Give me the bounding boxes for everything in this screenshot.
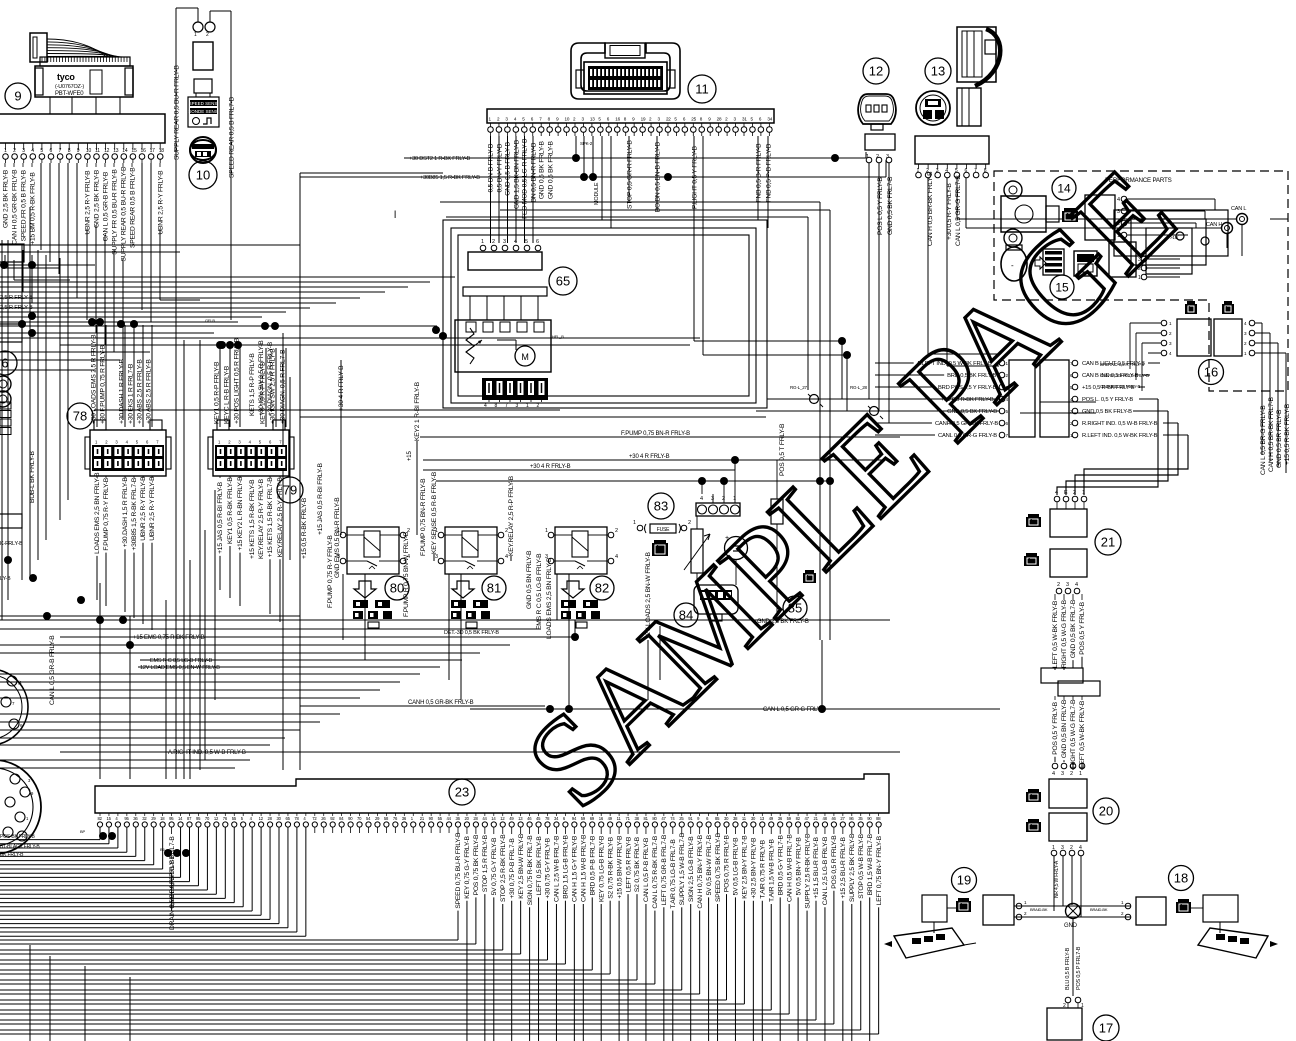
svg-text:SIGN 0,75 R-BK FRL7-B: SIGN 0,75 R-BK FRL7-B <box>527 835 534 905</box>
svg-text:14: 14 <box>122 148 128 154</box>
svg-text:CAN H 1,5 W-B FRLY-B: CAN H 1,5 W-B FRLY-B <box>581 834 588 902</box>
svg-text:+30 ABS 2,5 R FRLY-B: +30 ABS 2,5 R FRLY-B <box>137 359 144 424</box>
svg-text:KEY 0,75 G-Y FRLY-B: KEY 0,75 G-Y FRLY-B <box>464 835 471 898</box>
svg-text:+15 0,5 BN-W FRLY-B: +15 0,5 BN-W FRLY-B <box>616 835 623 899</box>
svg-text:F.PUMP 0,75 R-Y FRLY-B: F.PUMP 0,75 R-Y FRLY-B <box>103 477 110 550</box>
svg-text:POS 0,5 Y FRLY-B: POS 0,5 Y FRLY-B <box>1079 601 1086 654</box>
svg-text:+30 0,75 P-B FRL7-B: +30 0,75 P-B FRL7-B <box>509 838 516 899</box>
svg-text:GND 0,5 BN FRLY-B: GND 0,5 BN FRLY-B <box>1061 699 1068 758</box>
svg-text:BRAID-BK: BRAID-BK <box>1090 907 1108 912</box>
svg-text:STOP 0,5 GR-R FRLY-B: STOP 0,5 GR-R FRLY-B <box>627 140 634 209</box>
svg-text:8: 8 <box>495 403 498 409</box>
svg-text:CAN L 2,5 W-B FRL7-B: CAN L 2,5 W-B FRL7-B <box>554 835 561 902</box>
svg-text:13: 13 <box>931 64 945 79</box>
svg-text:CAN L 0,75 R-BK FRL7-B: CAN L 0,75 R-BK FRL7-B <box>652 835 659 908</box>
svg-text:CAN H 1,5 G-Y FRLY-B: CAN H 1,5 G-Y FRLY-B <box>572 835 579 902</box>
svg-text:1: 1 <box>633 520 636 526</box>
svg-text:16: 16 <box>141 148 147 154</box>
svg-text:LEFT 0,5 R FRLY-B: LEFT 0,5 R FRLY-B <box>625 836 632 892</box>
svg-text:9: 9 <box>14 89 21 104</box>
svg-text:5: 5 <box>525 239 528 245</box>
svg-text:SUPPLY REAR 0,5 BU-R FRLY-B: SUPPLY REAR 0,5 BU-R FRLY-B <box>121 166 128 261</box>
svg-text:POS L 0,5 Y FRLY-B: POS L 0,5 Y FRLY-B <box>877 177 884 235</box>
svg-text:STOP 2,5 R-BK FRLY-B: STOP 2,5 R-BK FRLY-B <box>500 834 507 902</box>
svg-text:RIGHT 0,5 W-G FRLY-B: RIGHT 0,5 W-G FRLY-B <box>1061 599 1068 668</box>
svg-text:CAN L 0,5 BR-G FRLY-B: CAN L 0,5 BR-G FRLY-B <box>1260 405 1267 475</box>
svg-text:KEYC L R-B FRLY-B: KEYC L R-B FRLY-B <box>224 365 231 424</box>
svg-text:28: 28 <box>717 117 722 122</box>
svg-text:+15 EMS 0,75 R-BK FRLY-B: +15 EMS 0,75 R-BK FRLY-B <box>133 635 205 641</box>
svg-text:SIGN 2,5 LG-B FRLY-B: SIGN 2,5 LG-B FRLY-B <box>688 836 695 902</box>
svg-text:CAN H 0,5 W-B FRL7-B: CAN H 0,5 W-B FRL7-B <box>786 834 793 902</box>
svg-text:+15 BM 0,5 R-BK FRLY-B: +15 BM 0,5 R-BK FRLY-B <box>30 172 37 245</box>
svg-text:K-FRLY-B: K-FRLY-B <box>0 541 23 547</box>
svg-text:BRD 0,5 G-Y FRL7-B: BRD 0,5 G-Y FRL7-B <box>777 834 784 895</box>
svg-text:19: 19 <box>641 117 646 122</box>
svg-text:SPEED REAR 0,5 B FRLY-B: SPEED REAR 0,5 B FRLY-B <box>130 167 137 248</box>
svg-text:SPEED.FR 0,5 B FRLY-B: SPEED.FR 0,5 B FRLY-B <box>21 169 28 241</box>
svg-text:2: 2 <box>615 528 618 534</box>
svg-text:M: M <box>521 352 528 362</box>
svg-text:SUPPLY FR 0,5 BU-R FRLY-B: SUPPLY FR 0,5 BU-R FRLY-B <box>112 169 119 255</box>
svg-text:F.PUMP 0,75 BN-R FRLY-B: F.PUMP 0,75 BN-R FRLY-B <box>621 431 690 437</box>
svg-text:1: 1 <box>545 528 548 534</box>
svg-text:SUPPLY REAR 0,5 BU-R FRLY-B: SUPPLY REAR 0,5 BU-R FRLY-B <box>174 65 181 160</box>
svg-text:BRD IND 0,5 R FRLY-B: BRD IND 0,5 R FRLY-B <box>1100 362 1144 367</box>
svg-text:+30 DST2 1 R-BK FRLY-B: +30 DST2 1 R-BK FRLY-B <box>409 156 471 162</box>
svg-text:5V 0,5 LG-B FRLY-B: 5V 0,5 LG-B FRLY-B <box>733 837 740 895</box>
svg-text:2: 2 <box>492 239 495 245</box>
svg-text:4: 4 <box>1052 771 1055 777</box>
svg-text:BN 0,5 BN-R FRLY-B: BN 0,5 BN-R FRLY-B <box>531 142 538 202</box>
svg-text:82: 82 <box>595 581 609 596</box>
svg-text:CAN H 0,5 GR-BK FRLY-B: CAN H 0,5 GR-BK FRLY-B <box>12 169 19 245</box>
svg-text:STOP 0,5 W-B FRLY-B: STOP 0,5 W-B FRLY-B <box>858 833 865 898</box>
svg-text:UBNR 2,5 R-Y FRLY-B: UBNR 2,5 R-Y FRLY-B <box>140 476 147 541</box>
svg-text:GND 0,5 BK FRLY-B: GND 0,5 BK FRLY-B <box>548 140 555 199</box>
svg-text:12: 12 <box>104 148 110 154</box>
svg-text:GND 1,5 BK-BN FRLY-B: GND 1,5 BK-BN FRLY-B <box>514 139 521 209</box>
svg-text:+15 2,5 BU-R FRLY-B: +15 2,5 BU-R FRLY-B <box>840 837 847 899</box>
svg-text:22: 22 <box>666 117 671 122</box>
svg-text:+30 POS LIGHT 0,5 R FRLY-B: +30 POS LIGHT 0,5 R FRLY-B <box>234 337 241 424</box>
svg-text:POS 0,5 R FRLY-B: POS 0,5 R FRLY-B <box>831 835 838 889</box>
svg-text:KEY 2,5 BN-W FRLY-B: KEY 2,5 BN-W FRLY-B <box>518 833 525 899</box>
svg-text:4: 4 <box>1055 490 1058 496</box>
svg-text:3: 3 <box>1061 771 1064 777</box>
svg-text:CAN L 0,5 GR-B FRLY-B: CAN L 0,5 GR-B FRLY-B <box>49 635 56 705</box>
svg-text:4: 4 <box>615 554 618 560</box>
svg-text:+30 0,75 G-Y FRLY-B: +30 0,75 G-Y FRLY-B <box>545 837 552 898</box>
svg-text:12V LOAD EMS 0,5 BN-W FRLY-B: 12V LOAD EMS 0,5 BN-W FRLY-B <box>140 665 220 671</box>
svg-text:CAN L 0,75 LG-B FRL7-B: CAN L 0,75 LG-B FRL7-B <box>169 836 176 909</box>
svg-text:l: l <box>394 210 396 221</box>
svg-text:78: 78 <box>73 409 87 424</box>
svg-text:5V 0,75 G-Y FRLY-B: 5V 0,75 G-Y FRLY-B <box>491 837 498 895</box>
svg-text:KEY1 0,5 R-BK FRLY-B: KEY1 0,5 R-BK FRLY-B <box>227 477 234 544</box>
svg-text:0,5 BN-Y FRLY-B: 0,5 BN-Y FRLY-B <box>497 143 504 192</box>
svg-text:BRD 1,5 LG-B FRLY-B: BRD 1,5 LG-B FRLY-B <box>563 834 570 898</box>
svg-text:2: 2 <box>688 520 691 526</box>
svg-text:18: 18 <box>159 148 165 154</box>
svg-text:GELB: GELB <box>205 318 215 323</box>
svg-text:1: 1 <box>1079 771 1082 777</box>
svg-text:BRD 1,5 W-B FRL7-B: BRD 1,5 W-B FRL7-B <box>867 833 874 895</box>
svg-text:LOADS EMS 2,5 BN FRLY-B: LOADS EMS 2,5 BN FRLY-B <box>546 557 553 639</box>
svg-text:F.PUMP 0,75 R-Y FRLY-B: F.PUMP 0,75 R-Y FRLY-B <box>327 535 334 608</box>
svg-text:PBT-WFE0: PBT-WFE0 <box>55 91 84 97</box>
svg-text:FUSE: FUSE <box>657 527 670 533</box>
svg-text:SPEED 0,75 BU-R FRLY-B: SPEED 0,75 BU-R FRLY-B <box>455 832 462 909</box>
svg-text:GND EMS 0,5 BN-R FRLY-B: GND EMS 0,5 BN-R FRLY-B <box>334 497 341 578</box>
svg-text:34: 34 <box>767 117 772 122</box>
svg-text:2: 2 <box>206 32 209 38</box>
svg-text:KEY1 0,5 R-P FRLY-B: KEY1 0,5 R-P FRLY-B <box>214 361 221 424</box>
svg-text:BLU 0,5 B FRLY-B: BLU 0,5 B FRLY-B <box>1065 947 1071 990</box>
svg-text:BRAID-BK: BRAID-BK <box>1030 907 1048 912</box>
svg-text:CANH 0,5 GR-BK FRLY-B: CANH 0,5 GR-BK FRLY-B <box>408 700 474 706</box>
svg-text:S2 0,75 BK FRLY-B: S2 0,75 BK FRLY-B <box>634 836 641 892</box>
svg-text:20: 20 <box>1099 804 1113 819</box>
svg-text:CAN L 2,5 LG-B FRLY-B: CAN L 2,5 LG-B FRLY-B <box>822 836 829 905</box>
svg-text:+15 0,5 R-BK FRLY-B: +15 0,5 R-BK FRLY-B <box>301 497 308 559</box>
svg-text:7: 7 <box>505 403 508 409</box>
svg-text:LEFT 0,5 BK FRLY-B: LEFT 0,5 BK FRLY-B <box>536 836 543 896</box>
svg-text:+30 4 R FRLY-B: +30 4 R FRLY-B <box>530 464 571 470</box>
svg-text:+30 DIAGN. 0,5 R FRL7-B: +30 DIAGN. 0,5 R FRL7-B <box>280 349 287 424</box>
svg-text:T.AIR 0,75 LG-B FRL7-B: T.AIR 0,75 LG-B FRL7-B <box>670 839 677 909</box>
svg-text:POS 0,75 R FRLY-B: POS 0,75 R FRLY-B <box>724 835 731 893</box>
svg-text:83: 83 <box>654 499 668 514</box>
svg-text:KEY 0,75 LG-B FRLY-B: KEY 0,75 LG-B FRLY-B <box>598 835 605 902</box>
svg-text:+30 DIAGN. 0,5 R FRLY-B: +30 DIAGN. 0,5 R FRLY-B <box>267 341 274 416</box>
svg-text:R.LEFT IND. 0,5 W-BK FRLY-B: R.LEFT IND. 0,5 W-BK FRLY-B <box>1082 433 1158 439</box>
svg-text:BP: BP <box>80 829 85 834</box>
svg-text:2: 2 <box>1057 582 1060 588</box>
svg-text:2: 2 <box>1070 771 1073 777</box>
svg-text:GND 2,5 BK FRLY-B: GND 2,5 BK FRLY-B <box>94 169 101 228</box>
svg-text:GND IND 0,5 FRLY-B: GND IND 0,5 FRLY-B <box>1100 384 1140 389</box>
svg-text:POS 0,75 BK FRLY-B: POS 0,75 BK FRLY-B <box>473 834 480 895</box>
svg-text:2: 2 <box>722 496 725 502</box>
svg-text:CAN H 0,75 BN-Y FRLY-B: CAN H 0,75 BN-Y FRLY-B <box>697 834 704 908</box>
svg-text:65: 65 <box>556 274 570 289</box>
svg-text:GND 0,5 BR FRLY-B: GND 0,5 BR FRLY-B <box>1276 409 1283 468</box>
svg-text:+15 JAS 0,5 R-BI FRLY-B: +15 JAS 0,5 R-BI FRLY-B <box>317 462 324 535</box>
svg-text:RIGHT 0,5 W-G FRL7-B: RIGHT 0,5 W-G FRL7-B <box>1070 699 1077 768</box>
svg-text:+15 JAS 0,5 R-BI FRLY-B: +15 JAS 0,5 R-BI FRLY-B <box>217 481 224 554</box>
svg-text:F.PUMP R 0,75 BN-W FRLY-B: F.PUMP R 0,75 BN-W FRLY-B <box>403 531 410 617</box>
svg-text:A.RIGHT IND. 0,5 W-B FRLY-B: A.RIGHT IND. 0,5 W-B FRLY-B <box>168 750 246 756</box>
svg-text:17: 17 <box>150 148 156 154</box>
svg-text:+15 0,5 R-BK FRLY-B: +15 0,5 R-BK FRLY-B <box>1284 403 1291 465</box>
svg-text:SUPPLY 2,5 R-BK FRLY-B: SUPPLY 2,5 R-BK FRLY-B <box>804 833 811 909</box>
svg-text:16: 16 <box>615 117 620 122</box>
svg-text:18: 18 <box>1174 871 1188 886</box>
svg-text:SUPPLY 1,5 W-B FRL7-B: SUPPLY 1,5 W-B FRL7-B <box>679 832 686 905</box>
svg-text:LOADS EMS 2,5 BN FRLY-B: LOADS EMS 2,5 BN FRLY-B <box>94 472 101 554</box>
svg-text:S2 0,75 R-BK FRLY-B: S2 0,75 R-BK FRLY-B <box>607 836 614 898</box>
svg-text:10: 10 <box>565 117 570 122</box>
svg-text:1: 1 <box>481 239 484 245</box>
svg-text:POS 0,5 Y FRLY-B: POS 0,5 Y FRLY-B <box>1052 701 1059 754</box>
svg-text:SPEED 0,75 BK FRLY-B: SPEED 0,75 BK FRLY-B <box>715 832 722 902</box>
svg-text:GND 0,5 BN FRLY-B: GND 0,5 BN FRLY-B <box>526 550 533 609</box>
svg-text:19: 19 <box>957 873 971 888</box>
svg-text:+30 ABS 2,5 R FRLY-B: +30 ABS 2,5 R FRLY-B <box>146 359 153 424</box>
svg-text:6: 6 <box>536 239 539 245</box>
svg-text:SPK-2: SPK-2 <box>580 141 593 146</box>
svg-text:KEY.RELAY 2,5 R-P FRLY-B: KEY.RELAY 2,5 R-P FRLY-B <box>508 475 515 556</box>
svg-text:CAN H 0,5 BR-BK FRL7-B: CAN H 0,5 BR-BK FRL7-B <box>1268 397 1275 472</box>
svg-text:GND: GND <box>1064 923 1078 929</box>
svg-text:T.AIR 1,5 W-B FRLY-B: T.AIR 1,5 W-B FRLY-B <box>768 838 775 902</box>
svg-text:UBNR 2,5 R-Y FRLY-B: UBNR 2,5 R-Y FRLY-B <box>149 476 156 541</box>
svg-text:KEY.RELAY 2,5 R-Y FRLY-B: KEY.RELAY 2,5 R-Y FRLY-B <box>258 478 265 559</box>
svg-text:10: 10 <box>86 148 92 154</box>
svg-text:4: 4 <box>1075 582 1078 588</box>
svg-text:(-U0767OZ-): (-U0767OZ-) <box>55 84 84 90</box>
svg-text:+30.DASH 1,5 R FRLY-B: +30.DASH 1,5 R FRLY-B <box>122 477 129 548</box>
svg-text:15: 15 <box>131 148 137 154</box>
svg-text:10: 10 <box>196 168 210 183</box>
svg-text:KEY 2,5 BN-Y FRL7-B: KEY 2,5 BN-Y FRL7-B <box>742 835 749 899</box>
svg-text:+30B85 1,5 R-BK FRL7-B: +30B85 1,5 R-BK FRL7-B <box>131 477 138 550</box>
svg-text:4: 4 <box>484 403 487 409</box>
svg-text:4: 4 <box>700 496 703 502</box>
svg-text:1: 1 <box>194 32 197 38</box>
svg-text:13: 13 <box>590 117 595 122</box>
svg-text:CAN L 0,5 GR-B FRLY-B: CAN L 0,5 GR-B FRLY-B <box>103 171 110 241</box>
svg-text:FNB 0,5 B-R FRLY-B: FNB 0,5 B-R FRLY-B <box>756 143 763 203</box>
svg-text:+15 1,5 BU-R FRLY-B: +15 1,5 BU-R FRLY-B <box>813 837 820 899</box>
svg-text:T.AIR 0,75 R FRLY-B: T.AIR 0,75 R FRLY-B <box>760 839 767 898</box>
svg-text:+30 2,5 BN-Y FRLY-B: +30 2,5 BN-Y FRLY-B <box>751 837 758 899</box>
svg-text:79: 79 <box>283 483 297 498</box>
svg-text:+30B85 1,5 R-BK FRLY-B: +30B85 1,5 R-BK FRLY-B <box>420 175 480 181</box>
svg-text:81: 81 <box>487 581 501 596</box>
svg-text:UBNR 2,5 R-Y FRLY-B: UBNR 2,5 R-Y FRLY-B <box>85 170 92 235</box>
svg-text:FNB 0,5 P-B FRLY-B: FNB 0,5 P-B FRLY-B <box>766 143 773 202</box>
svg-text:+30 4 R FRLY-B: +30 4 R FRLY-B <box>629 454 670 460</box>
svg-text:GND 0,5 BK FRL7-B: GND 0,5 BK FRL7-B <box>887 176 894 235</box>
svg-text:CAN L: CAN L <box>1231 206 1246 212</box>
svg-text:LEFT 0,75 GR-B FRL7-B: LEFT 0,75 GR-B FRL7-B <box>661 834 668 905</box>
svg-text:CAN L 0,5 GR-G FRLY-B: CAN L 0,5 GR-G FRLY-B <box>763 707 826 713</box>
svg-text:STOP 1,5 R FRLY-B: STOP 1,5 R FRLY-B <box>482 834 489 892</box>
svg-text:2: 2 <box>1073 490 1076 496</box>
svg-text:1: 1 <box>1082 490 1085 496</box>
svg-text:EMS R C 0,5 LG-B FRLY-B: EMS R C 0,5 LG-B FRLY-B <box>150 658 213 664</box>
svg-text:11: 11 <box>695 82 709 97</box>
svg-text:LEFT 0,5 W-BK FRLY-B: LEFT 0,5 W-BK FRLY-B <box>1052 600 1059 668</box>
svg-text:23: 23 <box>455 785 469 800</box>
svg-text:F.PUMP 0,75 BN-R FRLY-B: F.PUMP 0,75 BN-R FRLY-B <box>420 478 427 556</box>
svg-text:HEL_B: HEL_B <box>552 334 564 339</box>
svg-text:+15 KETS 1,5 R-BK FRLY-B: +15 KETS 1,5 R-BK FRLY-B <box>249 479 256 559</box>
svg-text:21: 21 <box>1101 535 1115 550</box>
svg-text:16: 16 <box>1204 365 1218 380</box>
svg-text:R.RIGHT IND. 0,5 W-B FRLY-B: R.RIGHT IND. 0,5 W-B FRLY-B <box>1082 421 1158 427</box>
svg-text:SUPPLY 2,5 BK FRLY-B: SUPPLY 2,5 BK FRLY-B <box>849 833 856 902</box>
svg-text:11: 11 <box>95 148 100 154</box>
svg-text:5V 0,5 BN-W FRL7-B: 5V 0,5 BN-W FRL7-B <box>706 834 713 895</box>
svg-text:+30 EKS 1 R FRL7-B: +30 EKS 1 R FRL7-B <box>128 363 135 424</box>
svg-text:3: 3 <box>711 496 714 502</box>
svg-text:1: 1 <box>526 403 529 409</box>
svg-text:KEY SENSE 0,5 R-B FRLY-B: KEY SENSE 0,5 R-B FRLY-B <box>431 471 438 554</box>
svg-text:12: 12 <box>869 64 883 79</box>
svg-text:GND 0,5 BK FRLY-B: GND 0,5 BK FRLY-B <box>539 140 546 199</box>
svg-text:31: 31 <box>742 117 747 122</box>
svg-text:LEFT 0,75 BN-Y FRLY-B: LEFT 0,75 BN-Y FRLY-B <box>876 835 883 905</box>
svg-text:+15: +15 <box>407 451 413 461</box>
svg-text:17: 17 <box>1099 1021 1113 1036</box>
svg-text:GND 2,5 BK FRLY-B: GND 2,5 BK FRLY-B <box>3 169 10 228</box>
svg-text:GND 0,5 BK FRLY-B: GND 0,5 BK FRLY-B <box>1082 409 1132 415</box>
svg-text:SPEED REAR 0,5 B FRL7-B: SPEED REAR 0,5 B FRL7-B <box>229 96 236 178</box>
svg-text:3: 3 <box>1066 582 1069 588</box>
svg-text:GND 0,5 BK FRL7-B: GND 0,5 BK FRL7-B <box>1070 599 1077 658</box>
svg-text:KETS 1,5 R-P FRLY-B: KETS 1,5 R-P FRLY-B <box>249 353 256 416</box>
svg-text:CAN L 0,5 GR-G FRL7-B: CAN L 0,5 GR-G FRL7-B <box>955 175 962 246</box>
svg-text:BRD 0,5 P-B FRL7-B: BRD 0,5 P-B FRL7-B <box>589 835 596 895</box>
svg-text:+15 KETS 1,5 R-BK FRL7-B: +15 KETS 1,5 R-BK FRL7-B <box>267 477 274 557</box>
svg-text:EMS R C 0,5 LG-B FRLY-B: EMS R C 0,5 LG-B FRLY-B <box>536 553 543 630</box>
svg-text:SONDE SENS: SONDE SENS <box>188 109 218 114</box>
svg-text:13: 13 <box>113 148 119 154</box>
svg-text:CAN H: CAN H <box>1206 222 1222 228</box>
svg-text:+15 KEY2 L R-BN FRLY-B: +15 KEY2 L R-BN FRLY-B <box>237 476 244 551</box>
svg-text:LEFT 0,5 W-BK FRLY-B: LEFT 0,5 W-BK FRLY-B <box>1079 700 1086 768</box>
svg-text:2: 2 <box>537 403 540 409</box>
svg-text:SPEED SENS: SPEED SENS <box>189 101 218 106</box>
svg-text:DET.-3D 0,5 BK FRLY-B: DET.-3D 0,5 BK FRLY-B <box>444 630 499 636</box>
svg-text:3: 3 <box>503 239 506 245</box>
svg-text:NR 4,5 W FRLY-A: NR 4,5 W FRLY-A <box>1054 860 1060 898</box>
svg-text:+30 DASH 1 R FRLY-B: +30 DASH 1 R FRLY-B <box>119 358 126 424</box>
svg-text:POS 0,5 P FRL7-B: POS 0,5 P FRL7-B <box>1076 946 1082 990</box>
svg-text:4: 4 <box>514 239 517 245</box>
svg-text:KEY.RELAY 2,5 R-Y FRLY-B: KEY.RELAY 2,5 R-Y FRLY-B <box>277 477 284 558</box>
svg-text:CAN L 0,5 P-B FRLY-B: CAN L 0,5 P-B FRLY-B <box>643 837 650 902</box>
svg-text:RG-L_27: RG-L_27 <box>790 385 808 390</box>
svg-text:25: 25 <box>691 117 696 122</box>
svg-text:UBNR 2,5 R-Y FRLY-B: UBNR 2,5 R-Y FRLY-B <box>158 170 165 235</box>
svg-text:+30 IGN SW 2,5 R FRLY-B: +30 IGN SW 2,5 R FRLY-B <box>258 340 265 416</box>
svg-text:tyco: tyco <box>57 72 75 82</box>
svg-text:KEY2 1 R-BI FRLY-B: KEY2 1 R-BI FRLY-B <box>414 381 421 441</box>
svg-text:5V 0,5 BN-Y FRLY-B: 5V 0,5 BN-Y FRLY-B <box>795 837 802 896</box>
svg-text:3: 3 <box>516 403 519 409</box>
svg-text:E: E <box>1064 490 1068 496</box>
svg-text:+30 F.PUMP 0,75 R FRLY-B: +30 F.PUMP 0,75 R FRLY-B <box>100 344 107 424</box>
